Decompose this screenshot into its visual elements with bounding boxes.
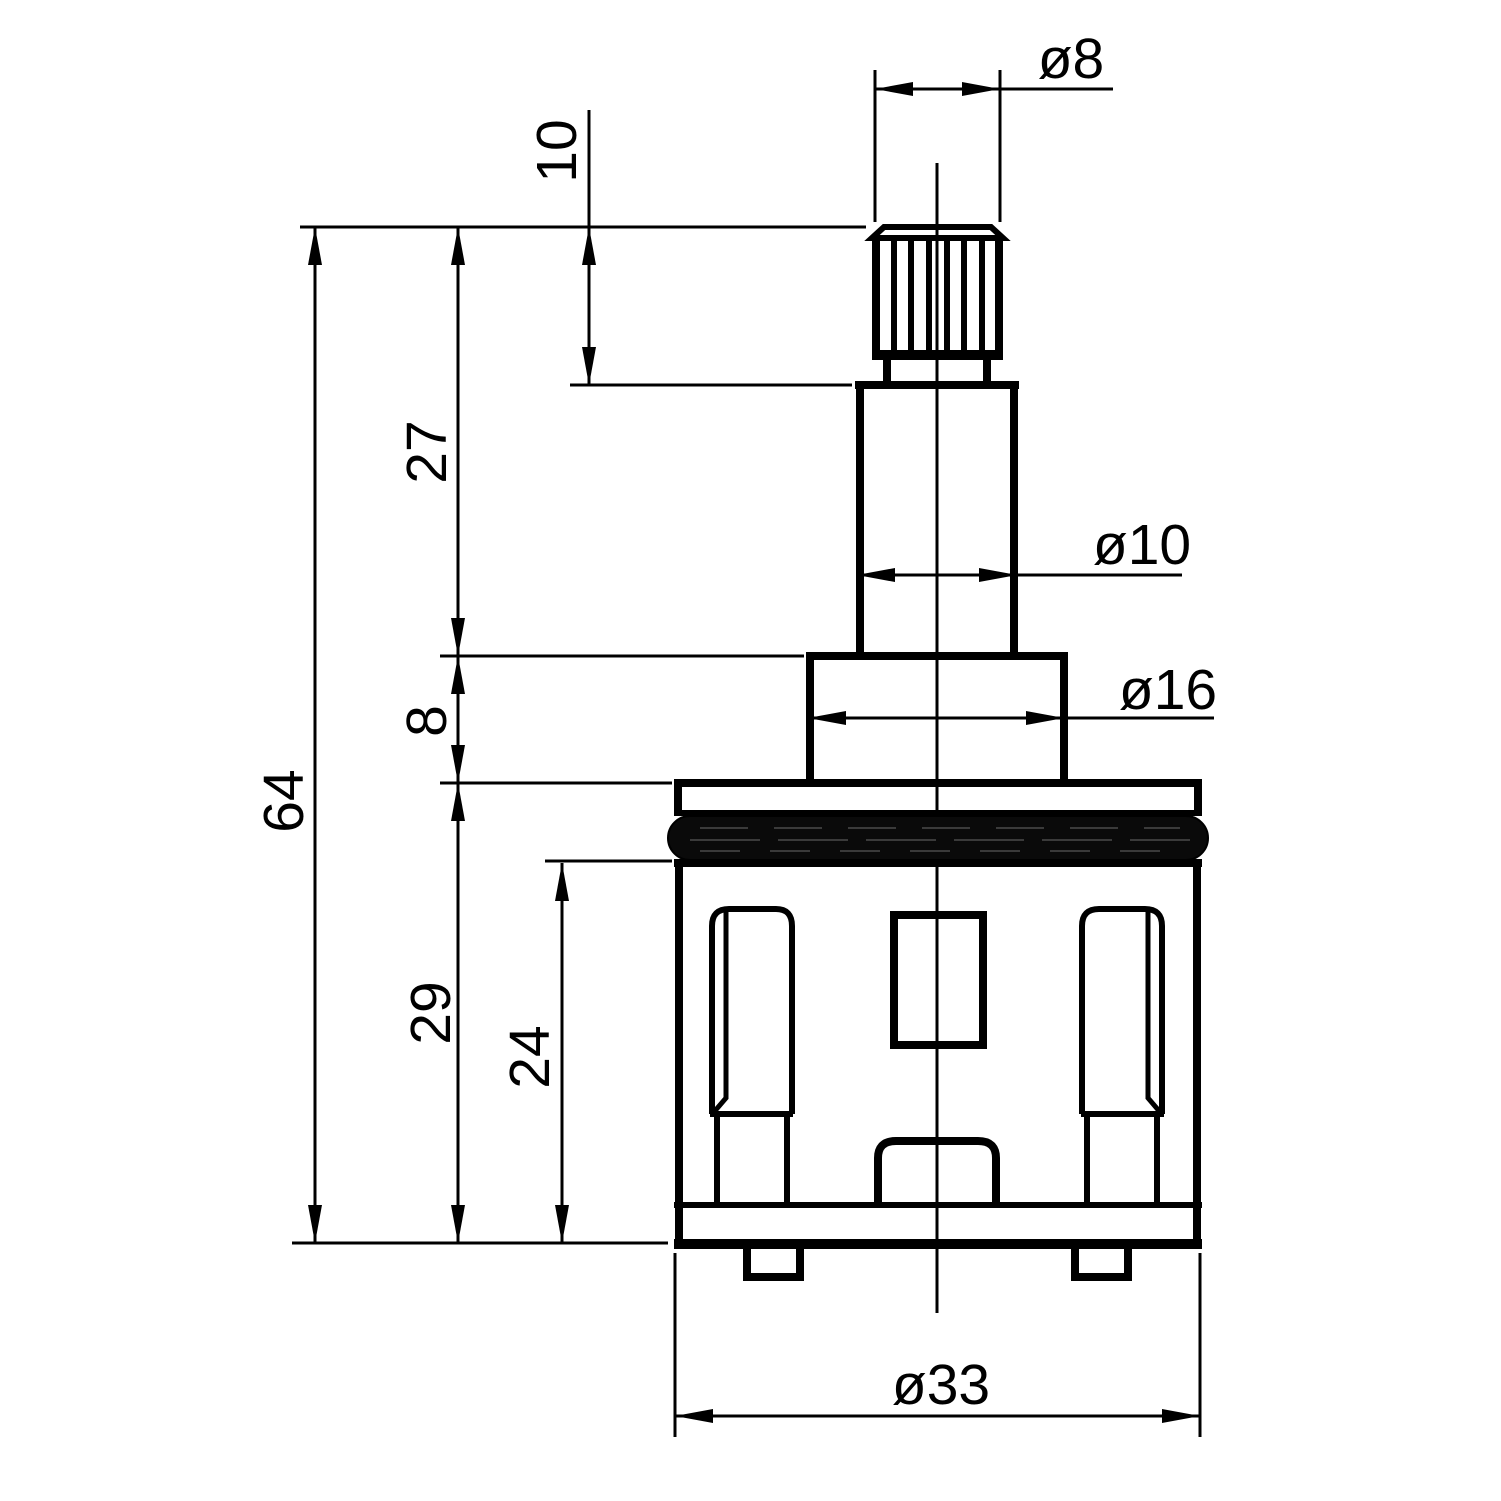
dim-label-27: 27 — [395, 420, 459, 483]
drawing-canvas: 64 27 8 29 24 10 ø8 — [0, 0, 1501, 1501]
cartridge-technical-drawing: 64 27 8 29 24 10 ø8 — [0, 0, 1501, 1501]
dim-label-64: 64 — [252, 769, 316, 832]
dim-label-8: 8 — [395, 705, 459, 737]
dim-label-10: 10 — [525, 119, 589, 182]
o-ring — [668, 816, 1208, 860]
dim-label-dia10: ø10 — [1093, 513, 1191, 577]
dim-label-24: 24 — [498, 1025, 562, 1088]
dim-label-dia33: ø33 — [892, 1353, 990, 1417]
dim-label-dia16: ø16 — [1119, 658, 1217, 722]
dim-label-dia8: ø8 — [1038, 27, 1105, 91]
dim-label-29: 29 — [399, 981, 463, 1044]
